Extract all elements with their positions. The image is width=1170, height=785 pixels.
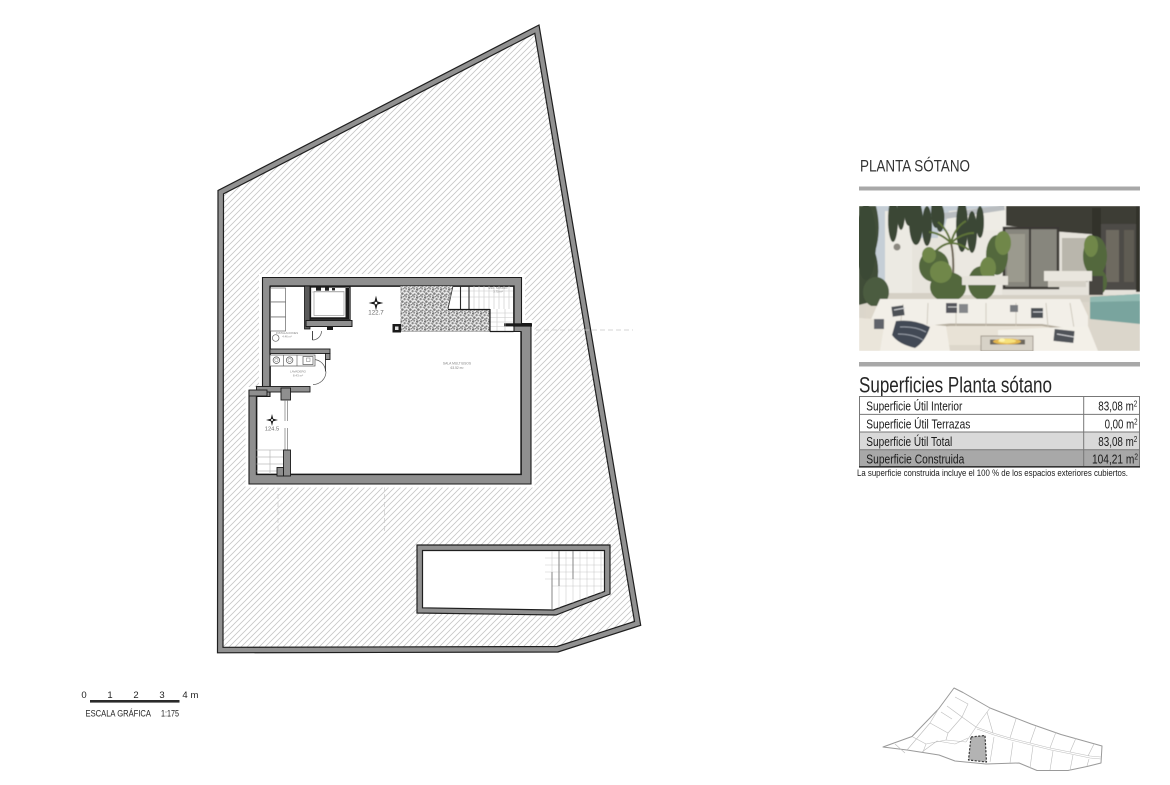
svg-text:122.7: 122.7 (368, 310, 384, 317)
svg-text:ESCALA GRÁFICA: ESCALA GRÁFICA (86, 709, 152, 720)
svg-text:1: 1 (107, 690, 112, 701)
svg-text:124.5: 124.5 (265, 427, 280, 433)
svg-text:3.75 m²: 3.75 m² (493, 290, 503, 294)
svg-text:63.52 m²: 63.52 m² (450, 366, 464, 370)
svg-text:m: m (191, 690, 199, 701)
svg-text:PLANTA SÓTANO: PLANTA SÓTANO (860, 156, 970, 175)
svg-text:3: 3 (159, 690, 164, 701)
svg-text:Superficies Planta sótano: Superficies Planta sótano (859, 373, 1052, 398)
svg-text:4: 4 (182, 690, 187, 701)
svg-text:0: 0 (81, 690, 86, 701)
svg-text:Superficie Útil Interior: Superficie Útil Interior (866, 399, 962, 414)
svg-text:Superficie Útil Terrazas: Superficie Útil Terrazas (866, 416, 970, 431)
svg-text:4.46 m²: 4.46 m² (282, 335, 292, 339)
svg-text:8.43 m²: 8.43 m² (293, 374, 303, 378)
svg-text:Superficie Útil Total: Superficie Útil Total (866, 434, 952, 449)
svg-text:1:175: 1:175 (161, 709, 179, 720)
svg-text:104,21 m2: 104,21 m2 (1092, 453, 1138, 467)
svg-text:Superficie Construida: Superficie Construida (866, 453, 964, 467)
svg-text:La superficie construida inclu: La superficie construida incluye el 100 … (857, 468, 1128, 479)
svg-text:83,08 m2: 83,08 m2 (1098, 435, 1137, 449)
svg-text:0,00 m2: 0,00 m2 (1105, 417, 1138, 431)
svg-text:2: 2 (133, 690, 138, 701)
svg-text:83,08 m2: 83,08 m2 (1098, 400, 1137, 414)
